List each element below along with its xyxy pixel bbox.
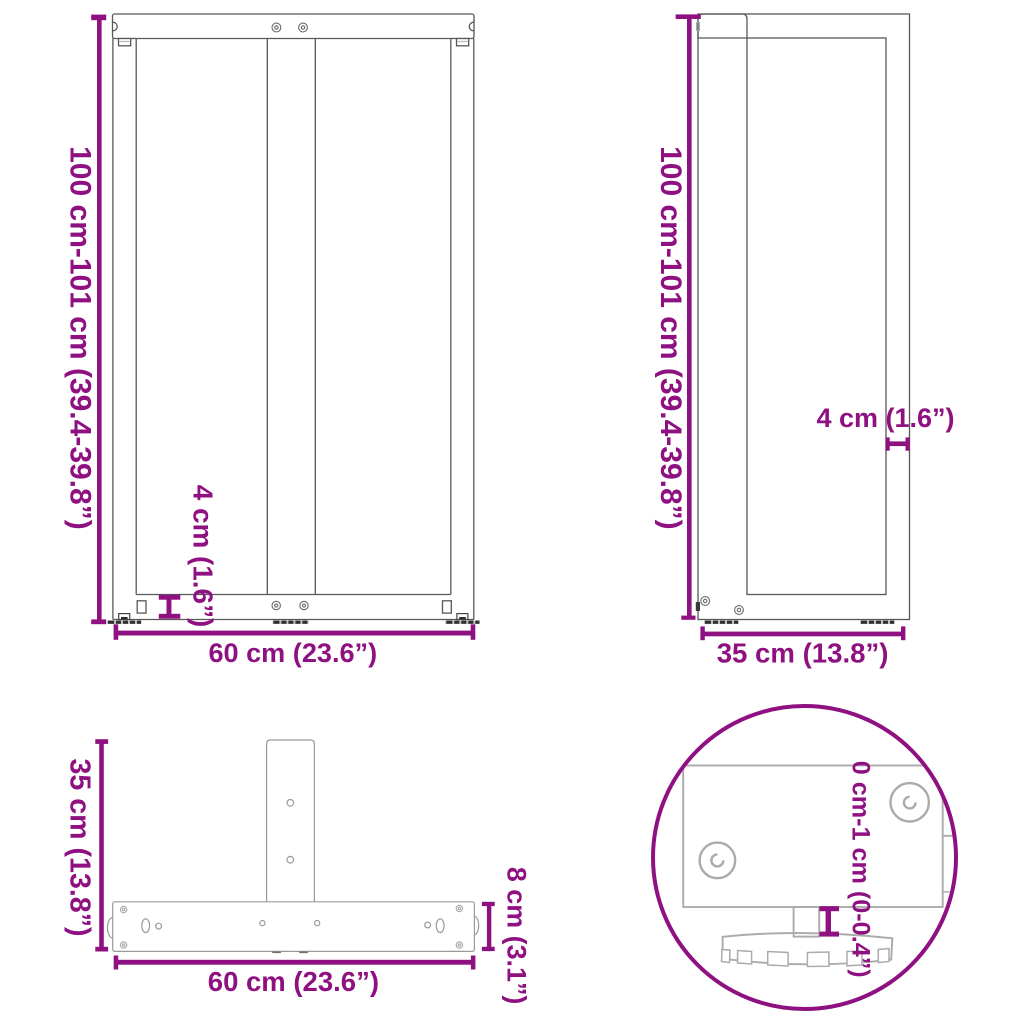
svg-text:35 cm (13.8”): 35 cm (13.8”) (64, 758, 96, 936)
svg-text:60 cm (23.6”): 60 cm (23.6”) (208, 637, 377, 668)
svg-text:8 cm (3.1”): 8 cm (3.1”) (502, 867, 532, 1005)
svg-text:100 cm-101 cm (39.4-39.8”): 100 cm-101 cm (39.4-39.8”) (63, 146, 96, 530)
svg-text:100 cm-101 cm (39.4-39.8”): 100 cm-101 cm (39.4-39.8”) (654, 146, 687, 530)
svg-text:4 cm (1.6”): 4 cm (1.6”) (816, 403, 954, 433)
svg-text:60 cm (23.6”): 60 cm (23.6”) (208, 966, 379, 997)
svg-text:4 cm (1.6”): 4 cm (1.6”) (188, 485, 219, 628)
svg-text:35 cm (13.8”): 35 cm (13.8”) (717, 638, 889, 669)
svg-text:0 cm-1 cm (0-0.4”): 0 cm-1 cm (0-0.4”) (846, 761, 874, 978)
